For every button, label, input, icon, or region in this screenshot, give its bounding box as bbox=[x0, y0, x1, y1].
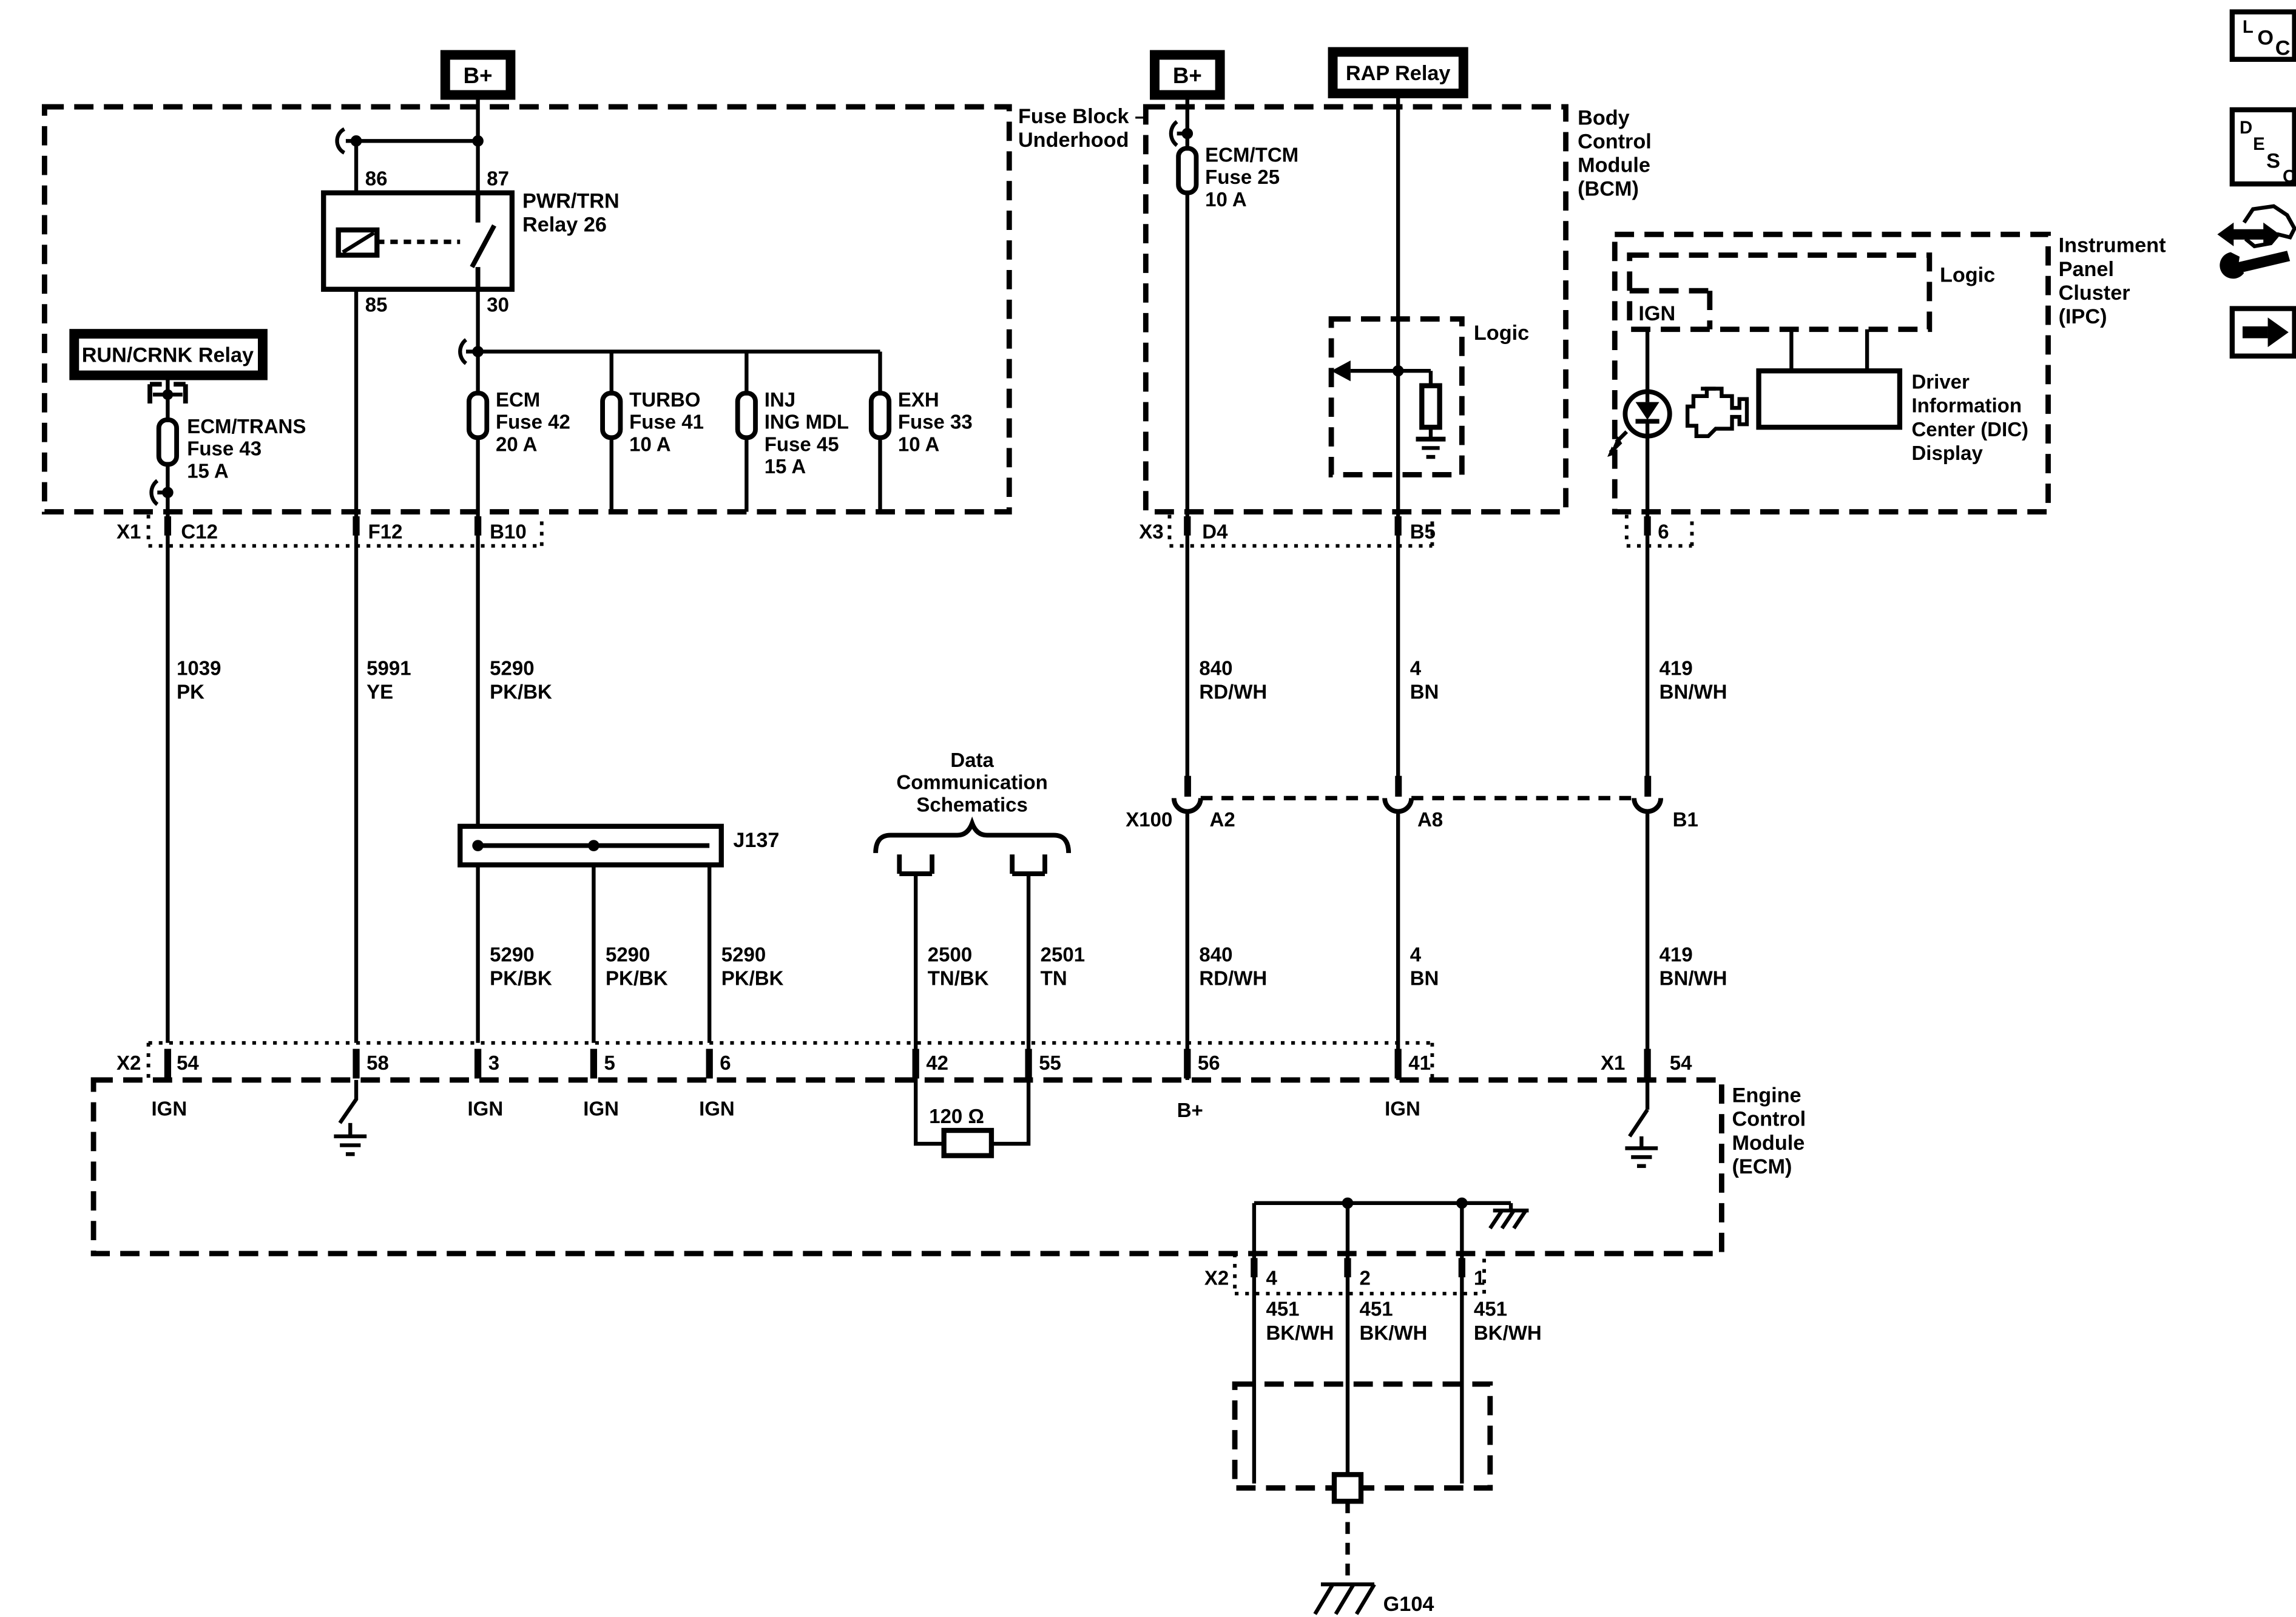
inline-connector-a2 bbox=[1174, 776, 1201, 812]
ipc-label-2: Panel bbox=[2059, 258, 2114, 281]
fuse-ecmtcm-3: 10 A bbox=[1205, 188, 1246, 211]
ipc-label-4: (IPC) bbox=[2059, 305, 2107, 328]
relay-name-2: Relay 26 bbox=[522, 213, 607, 236]
f12-label: F12 bbox=[368, 521, 403, 543]
w451c-num: 451 bbox=[1474, 1298, 1507, 1320]
ecm-label-3: Module bbox=[1732, 1132, 1805, 1155]
w4a-num: 4 bbox=[1410, 657, 1422, 679]
bcm-label-4: (BCM) bbox=[1578, 178, 1639, 201]
bplus-right-box: B+ bbox=[1155, 55, 1220, 95]
w5290c-color: PK/BK bbox=[606, 967, 668, 989]
w840b-num: 840 bbox=[1199, 943, 1232, 965]
t54-label: 54 bbox=[177, 1052, 199, 1074]
x1-54-label: 54 bbox=[1670, 1052, 1692, 1074]
bplus-left-box: B+ bbox=[445, 55, 511, 95]
ipc-ign-label: IGN bbox=[1638, 302, 1675, 325]
fuse-ecm-trans-2: Fuse 43 bbox=[187, 437, 262, 460]
x100-label: X100 bbox=[1126, 808, 1172, 831]
t3-label: 3 bbox=[488, 1052, 499, 1074]
relay-name-1: PWR/TRN bbox=[522, 189, 620, 212]
run-crnk-relay-box: RUN/CRNK Relay bbox=[74, 334, 263, 375]
diagnostic-tool-icon[interactable] bbox=[2217, 206, 2294, 279]
w5290a-color: PK/BK bbox=[490, 681, 552, 703]
t5-label: 5 bbox=[604, 1052, 615, 1074]
fn-ign-3: IGN bbox=[467, 1098, 503, 1120]
data-comm-1: Data bbox=[950, 749, 994, 771]
loc-c: C bbox=[2275, 36, 2291, 59]
w451a-color: BK/WH bbox=[1266, 1322, 1334, 1344]
fuse-ecm-tcm-25: ECM/TCM Fuse 25 10 A bbox=[1178, 144, 1298, 211]
ipc-logic-label: Logic bbox=[1940, 264, 1995, 287]
fn-ign-6: IGN bbox=[699, 1098, 735, 1120]
desc-e: E bbox=[2253, 134, 2265, 154]
fn-ign-5: IGN bbox=[583, 1098, 619, 1120]
w451b-color: BK/WH bbox=[1360, 1322, 1428, 1344]
resistor-label: 120 Ω bbox=[929, 1105, 984, 1127]
w5290b-num: 5290 bbox=[490, 943, 534, 965]
w5290d-num: 5290 bbox=[721, 943, 766, 965]
bcm-logic-label: Logic bbox=[1474, 322, 1529, 345]
j137-label: J137 bbox=[733, 829, 779, 852]
fuse-ecm-3: 20 A bbox=[496, 433, 537, 455]
bcm-label-3: Module bbox=[1578, 154, 1650, 177]
terminating-resistor-120ohm: 120 Ω bbox=[929, 1105, 991, 1156]
x2-ecm-label: X2 bbox=[116, 1052, 141, 1074]
fuse-ecm-trans-1: ECM/TRANS bbox=[187, 415, 306, 437]
w419b-color: BN/WH bbox=[1660, 967, 1727, 989]
desc-c: C bbox=[2283, 167, 2295, 187]
inline-connector-a8 bbox=[1385, 776, 1411, 812]
fuse-ecm-trans-3: 15 A bbox=[187, 459, 228, 482]
w1039-num: 1039 bbox=[177, 657, 221, 679]
w840a-num: 840 bbox=[1199, 657, 1232, 679]
dic-2: Information bbox=[1911, 394, 2022, 417]
w840a-color: RD/WH bbox=[1199, 681, 1267, 703]
t56-label: 56 bbox=[1198, 1052, 1220, 1074]
fuse-ecm-2: Fuse 42 bbox=[496, 411, 570, 433]
c12-label: C12 bbox=[181, 521, 218, 543]
relay-pin-87: 87 bbox=[487, 167, 509, 190]
terminal-ticks bbox=[167, 516, 1647, 1277]
d4-label: D4 bbox=[1202, 521, 1228, 543]
relay-pin-30: 30 bbox=[487, 293, 509, 316]
w5290d-color: PK/BK bbox=[721, 967, 784, 989]
fuse-turbo-41: TURBO Fuse 41 10 A bbox=[603, 388, 704, 455]
w419b-num: 419 bbox=[1660, 943, 1693, 965]
ipc-label-3: Cluster bbox=[2059, 282, 2130, 305]
fn-bplus-56: B+ bbox=[1177, 1099, 1203, 1121]
w5290a-num: 5290 bbox=[490, 657, 534, 679]
branch-hooks-and-junctions bbox=[151, 121, 1193, 504]
connector-strip-x2-ecm bbox=[149, 1043, 1433, 1079]
loc-o: O bbox=[2257, 26, 2274, 49]
fuse-ecm-1: ECM bbox=[496, 388, 540, 411]
w5991-color: YE bbox=[366, 681, 393, 703]
w5290b-color: PK/BK bbox=[490, 967, 552, 989]
bcm-label-2: Control bbox=[1578, 130, 1652, 154]
ground-symbol-58 bbox=[334, 1123, 366, 1154]
connector-labels: X1 C12 F12 B10 X3 D4 B5 6 X100 A2 A8 B1 … bbox=[116, 521, 1698, 1289]
fn-ign-54: IGN bbox=[151, 1098, 187, 1120]
t42-label: 42 bbox=[926, 1052, 948, 1074]
w419a-color: BN/WH bbox=[1660, 681, 1727, 703]
a8-label: A8 bbox=[1417, 808, 1443, 831]
fuse-inj-2: ING MDL bbox=[765, 411, 849, 433]
desc-s: S bbox=[2266, 149, 2280, 172]
t58-label: 58 bbox=[366, 1052, 389, 1074]
x1-right-label: X1 bbox=[1601, 1052, 1625, 1074]
desc-d: D bbox=[2240, 118, 2252, 138]
j137-splice-pack: J137 bbox=[460, 826, 779, 865]
rap-relay-label: RAP Relay bbox=[1346, 62, 1450, 85]
relay-pin-85: 85 bbox=[365, 293, 388, 316]
fuse-inj-3: Fuse 45 bbox=[765, 433, 839, 455]
x2-bottom-label: X2 bbox=[1204, 1266, 1229, 1289]
w451a-num: 451 bbox=[1266, 1298, 1299, 1320]
w2500-num: 2500 bbox=[928, 943, 972, 965]
g104-label: G104 bbox=[1383, 1593, 1434, 1616]
bplus-left-label: B+ bbox=[464, 63, 493, 88]
fuse-ecmtcm-2: Fuse 25 bbox=[1205, 166, 1280, 188]
next-arrow-icon[interactable] bbox=[2232, 309, 2295, 356]
b10-label: B10 bbox=[490, 521, 527, 543]
w840b-color: RD/WH bbox=[1199, 967, 1267, 989]
fuse-turbo-1: TURBO bbox=[629, 388, 700, 411]
fuse-block-label-1: Fuse Block – bbox=[1018, 105, 1146, 128]
bplus-right-label: B+ bbox=[1173, 63, 1202, 88]
wiring-diagram-page: B+ B+ RAP Relay RUN/CRNK Relay 86 87 85 … bbox=[0, 0, 2296, 1617]
p2-label: 2 bbox=[1360, 1266, 1371, 1289]
data-comm-2: Communication bbox=[896, 771, 1047, 794]
pwr-trn-relay: 86 87 85 30 PWR/TRN Relay 26 bbox=[323, 167, 619, 316]
dic-display-box: Driver Information Center (DIC) Display bbox=[1759, 371, 2028, 464]
t6-label: 6 bbox=[720, 1052, 731, 1074]
loc-icon[interactable]: L O C bbox=[2232, 12, 2295, 60]
rap-relay-box: RAP Relay bbox=[1333, 52, 1464, 93]
b1-label: B1 bbox=[1673, 808, 1698, 831]
fuse-turbo-3: 10 A bbox=[629, 433, 670, 455]
ecm-label-4: (ECM) bbox=[1732, 1155, 1792, 1178]
w2501-color: TN bbox=[1041, 967, 1067, 989]
p4-label: 4 bbox=[1266, 1266, 1277, 1289]
g104-chassis-ground: G104 bbox=[1315, 1474, 1434, 1616]
inline-connector-b1 bbox=[1634, 776, 1661, 812]
b5-label: B5 bbox=[1410, 521, 1436, 543]
w5290c-num: 5290 bbox=[606, 943, 650, 965]
relay-pin-86: 86 bbox=[365, 167, 388, 190]
ecm-label-1: Engine bbox=[1732, 1084, 1801, 1107]
x3-label: X3 bbox=[1139, 521, 1163, 543]
fuse-exh-1: EXH bbox=[898, 388, 939, 411]
a2-label: A2 bbox=[1210, 808, 1235, 831]
engine-icon bbox=[1687, 389, 1747, 436]
w419a-num: 419 bbox=[1660, 657, 1693, 679]
data-comm-3: Schematics bbox=[916, 793, 1027, 815]
fuse-exh-33: EXH Fuse 33 10 A bbox=[871, 388, 973, 455]
fuse-inj-4: 15 A bbox=[765, 455, 806, 478]
fuse-ecm-42: ECM Fuse 42 20 A bbox=[469, 388, 570, 455]
desc-icon[interactable]: D E S C bbox=[2232, 110, 2295, 187]
wiring-diagram: B+ B+ RAP Relay RUN/CRNK Relay 86 87 85 … bbox=[0, 0, 2296, 1617]
fuse-exh-2: Fuse 33 bbox=[898, 411, 973, 433]
t41-label: 41 bbox=[1408, 1052, 1431, 1074]
ipc-label-1: Instrument bbox=[2059, 234, 2166, 257]
dic-1: Driver bbox=[1911, 371, 1970, 393]
w5991-num: 5991 bbox=[366, 657, 411, 679]
ecm-box bbox=[93, 1080, 1721, 1254]
w4a-color: BN bbox=[1410, 681, 1439, 703]
p1-label: 1 bbox=[1474, 1266, 1485, 1289]
fuse-block-label-2: Underhood bbox=[1018, 129, 1129, 152]
data-comm-schematics: Data Communication Schematics bbox=[876, 749, 1069, 874]
t55-label: 55 bbox=[1039, 1052, 1061, 1074]
fuse-turbo-2: Fuse 41 bbox=[629, 411, 704, 433]
w4b-num: 4 bbox=[1410, 943, 1422, 965]
bcm-label-1: Body bbox=[1578, 106, 1630, 129]
ipc-pin6-label: 6 bbox=[1658, 521, 1669, 543]
ecm-label-2: Control bbox=[1732, 1108, 1806, 1131]
fuse-ecm-trans: ECM/TRANS Fuse 43 15 A bbox=[159, 415, 306, 482]
fuse-ecmtcm-1: ECM/TCM bbox=[1205, 144, 1298, 166]
ground-symbol-x1-54 bbox=[1625, 1136, 1658, 1166]
dic-4: Display bbox=[1911, 442, 1983, 464]
w451c-color: BK/WH bbox=[1474, 1322, 1542, 1344]
dic-3: Center (DIC) bbox=[1911, 418, 2028, 441]
w2500-color: TN/BK bbox=[928, 967, 989, 989]
w2501-num: 2501 bbox=[1041, 943, 1085, 965]
w451b-num: 451 bbox=[1360, 1298, 1393, 1320]
w4b-color: BN bbox=[1410, 967, 1439, 989]
ipc-internals: Logic IGN Driver Information Center (DIC… bbox=[1607, 264, 2028, 464]
run-crnk-relay-label: RUN/CRNK Relay bbox=[82, 344, 254, 367]
fuse-exh-3: 10 A bbox=[898, 433, 939, 455]
loc-l: L bbox=[2243, 17, 2254, 37]
x1-top-label: X1 bbox=[116, 521, 141, 543]
fuse-inj-1: INJ bbox=[765, 388, 795, 411]
fuse-inj-45: INJ ING MDL Fuse 45 15 A bbox=[738, 388, 849, 478]
fn-ign-41: IGN bbox=[1385, 1098, 1420, 1120]
w1039-color: PK bbox=[177, 681, 204, 703]
